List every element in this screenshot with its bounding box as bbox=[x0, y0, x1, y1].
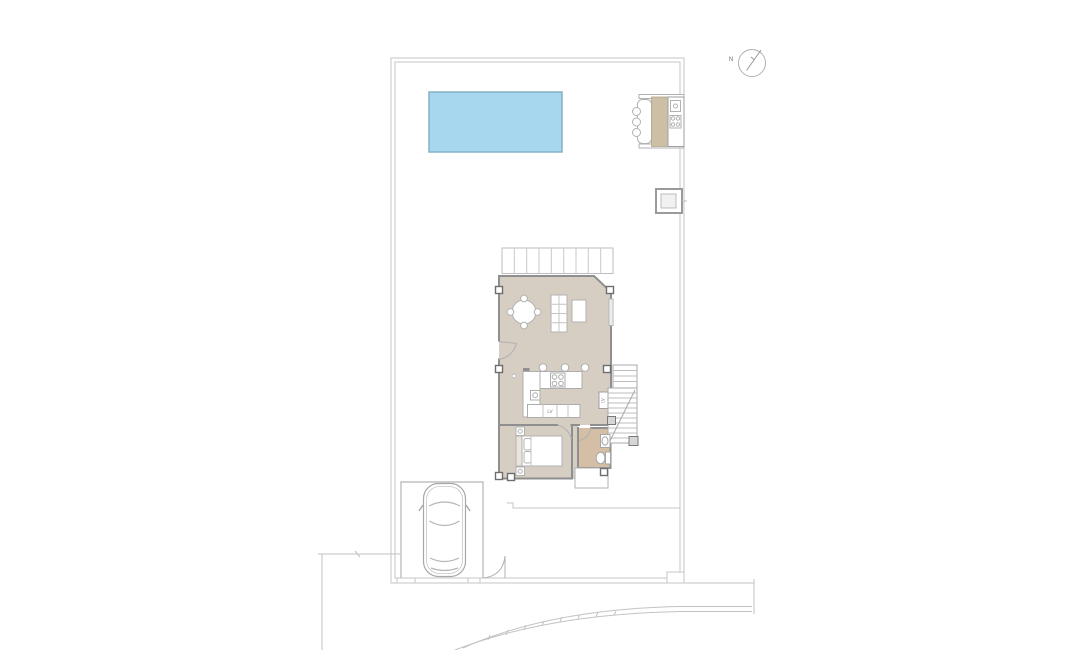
car-body bbox=[424, 484, 466, 577]
boundary-notch bbox=[468, 578, 480, 583]
patio bbox=[507, 503, 680, 508]
car bbox=[419, 484, 470, 577]
compass: N bbox=[729, 50, 766, 77]
north-label: N bbox=[729, 55, 734, 63]
staircase bbox=[608, 365, 639, 446]
road-lines bbox=[318, 551, 754, 650]
stair-column bbox=[629, 437, 638, 446]
toilet-bowl bbox=[596, 452, 605, 464]
dishwasher-label: LV bbox=[547, 409, 553, 415]
stair-column bbox=[608, 417, 616, 425]
column bbox=[496, 473, 503, 480]
bed-pillow bbox=[524, 439, 531, 451]
technical-unit-inner bbox=[661, 194, 676, 208]
pool-water bbox=[429, 92, 562, 152]
bar-stool bbox=[539, 364, 547, 372]
technical-unit bbox=[656, 189, 687, 213]
bathroom-sink-basin bbox=[602, 437, 608, 445]
gate-swing bbox=[483, 556, 505, 578]
living-window bbox=[609, 299, 613, 326]
kerb-upper-curve bbox=[463, 607, 752, 649]
kerb-stone-ticks bbox=[488, 611, 616, 640]
column bbox=[601, 469, 608, 476]
nightstand-lamp bbox=[518, 429, 522, 433]
gate-post bbox=[667, 572, 684, 583]
bbq-stool bbox=[633, 129, 641, 137]
pergola bbox=[502, 248, 613, 274]
sideboard bbox=[572, 300, 586, 322]
laundry-label: LV bbox=[601, 398, 606, 403]
bbq-sink-drain bbox=[674, 104, 678, 108]
bed-headboard bbox=[516, 436, 522, 466]
toilet-tank bbox=[606, 452, 611, 464]
patio-edge-line bbox=[507, 503, 680, 508]
column bbox=[496, 366, 503, 373]
bar-stool bbox=[561, 364, 569, 372]
site-plan-page: N bbox=[0, 0, 1070, 650]
column bbox=[508, 474, 515, 481]
bed-pillow bbox=[524, 452, 531, 464]
column bbox=[607, 287, 614, 294]
boundary-notch bbox=[397, 578, 415, 583]
house: LV LV bbox=[496, 248, 639, 488]
column bbox=[604, 366, 611, 373]
column bbox=[496, 287, 503, 294]
bed bbox=[516, 436, 562, 466]
bbq-counter-tan bbox=[652, 97, 669, 147]
bar-stool bbox=[581, 364, 589, 372]
pedestrian-gate bbox=[483, 556, 505, 578]
site-plan-drawing: N bbox=[0, 0, 1070, 650]
kerb-lower-curve bbox=[455, 612, 752, 650]
pergola-frame bbox=[502, 248, 613, 274]
swimming-pool bbox=[429, 92, 562, 152]
bbq-stool bbox=[633, 118, 641, 126]
kitchen-sink-drain bbox=[533, 393, 538, 398]
dining-table bbox=[512, 300, 536, 324]
outdoor-kitchen bbox=[633, 95, 685, 149]
bbq-stool bbox=[633, 108, 641, 116]
carport bbox=[401, 482, 483, 578]
nightstand-lamp bbox=[518, 469, 522, 473]
kitchen-counter-bottom bbox=[528, 405, 581, 418]
